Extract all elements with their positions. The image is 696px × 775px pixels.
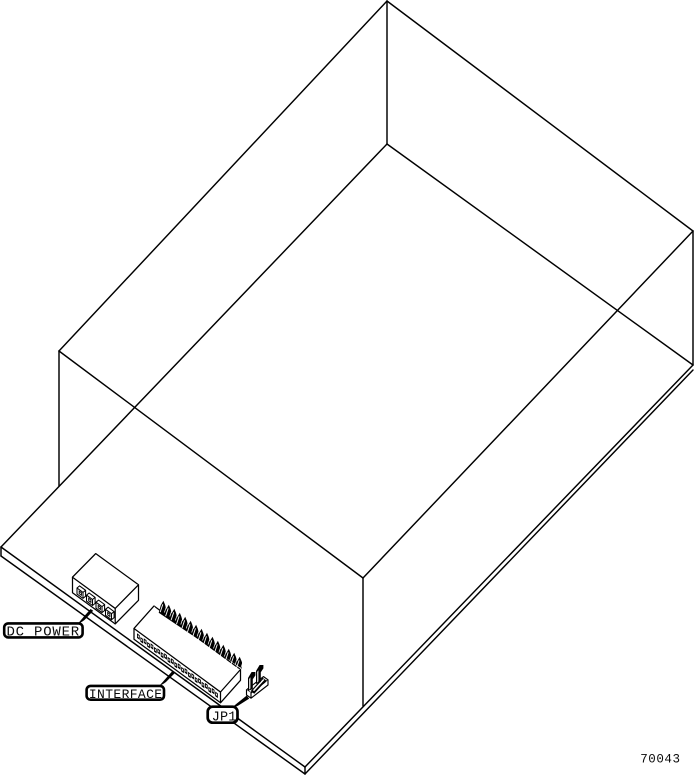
svg-text:70043: 70043 bbox=[640, 753, 680, 767]
svg-text:DC POWER: DC POWER bbox=[7, 624, 80, 640]
svg-text:INTERFACE: INTERFACE bbox=[89, 687, 163, 702]
svg-text:JP1: JP1 bbox=[212, 711, 237, 726]
